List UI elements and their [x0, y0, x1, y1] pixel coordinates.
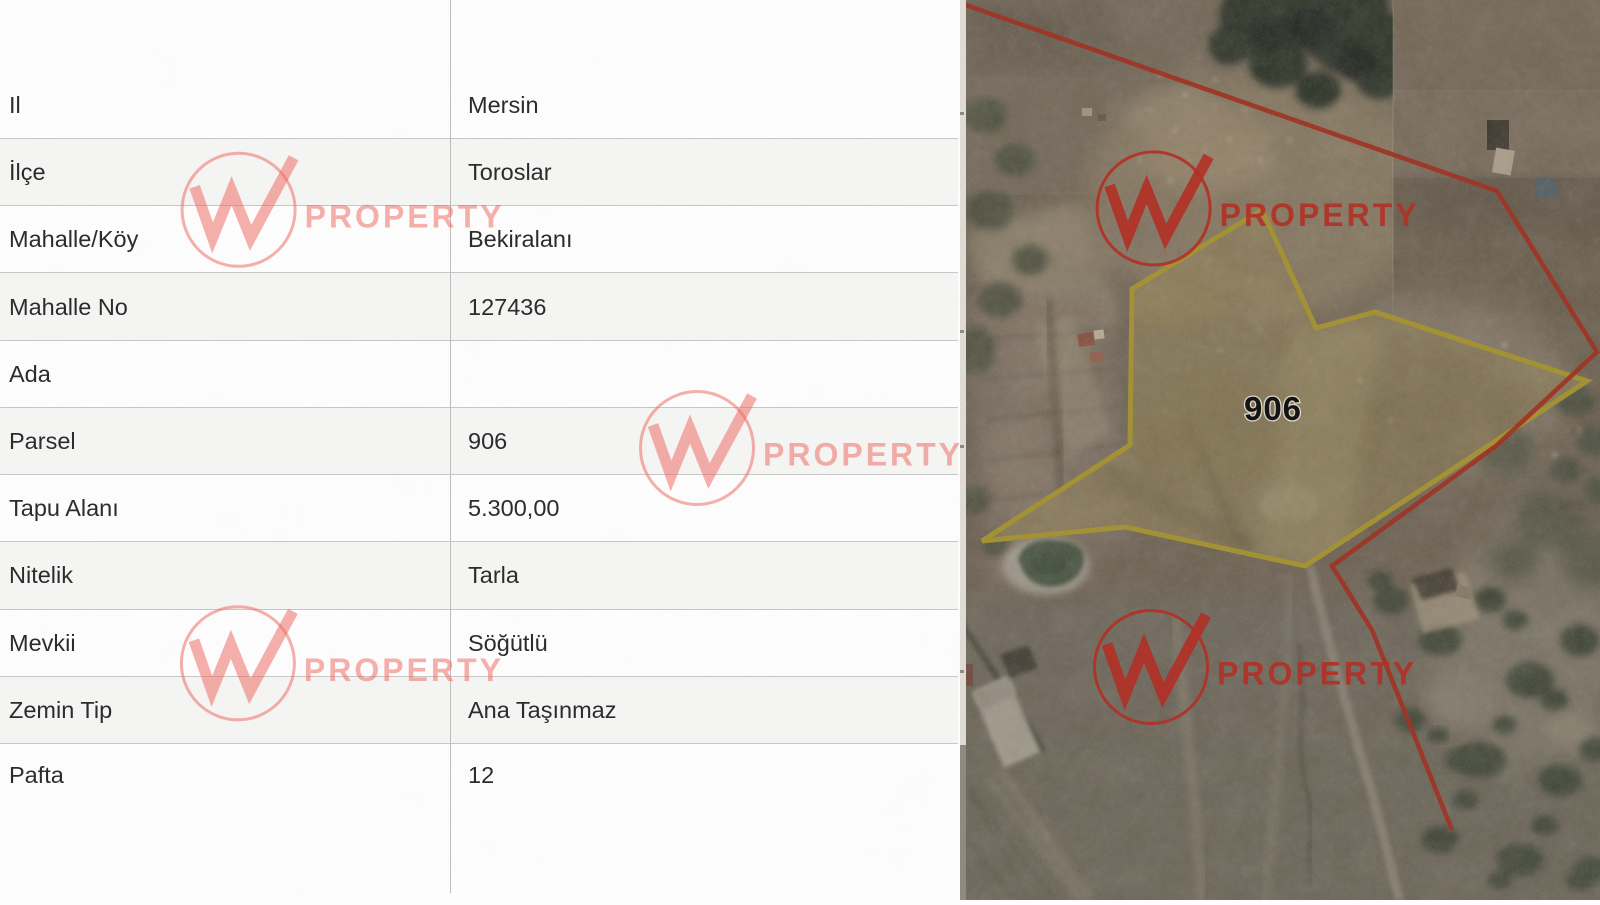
svg-text:906: 906 — [1244, 390, 1302, 427]
